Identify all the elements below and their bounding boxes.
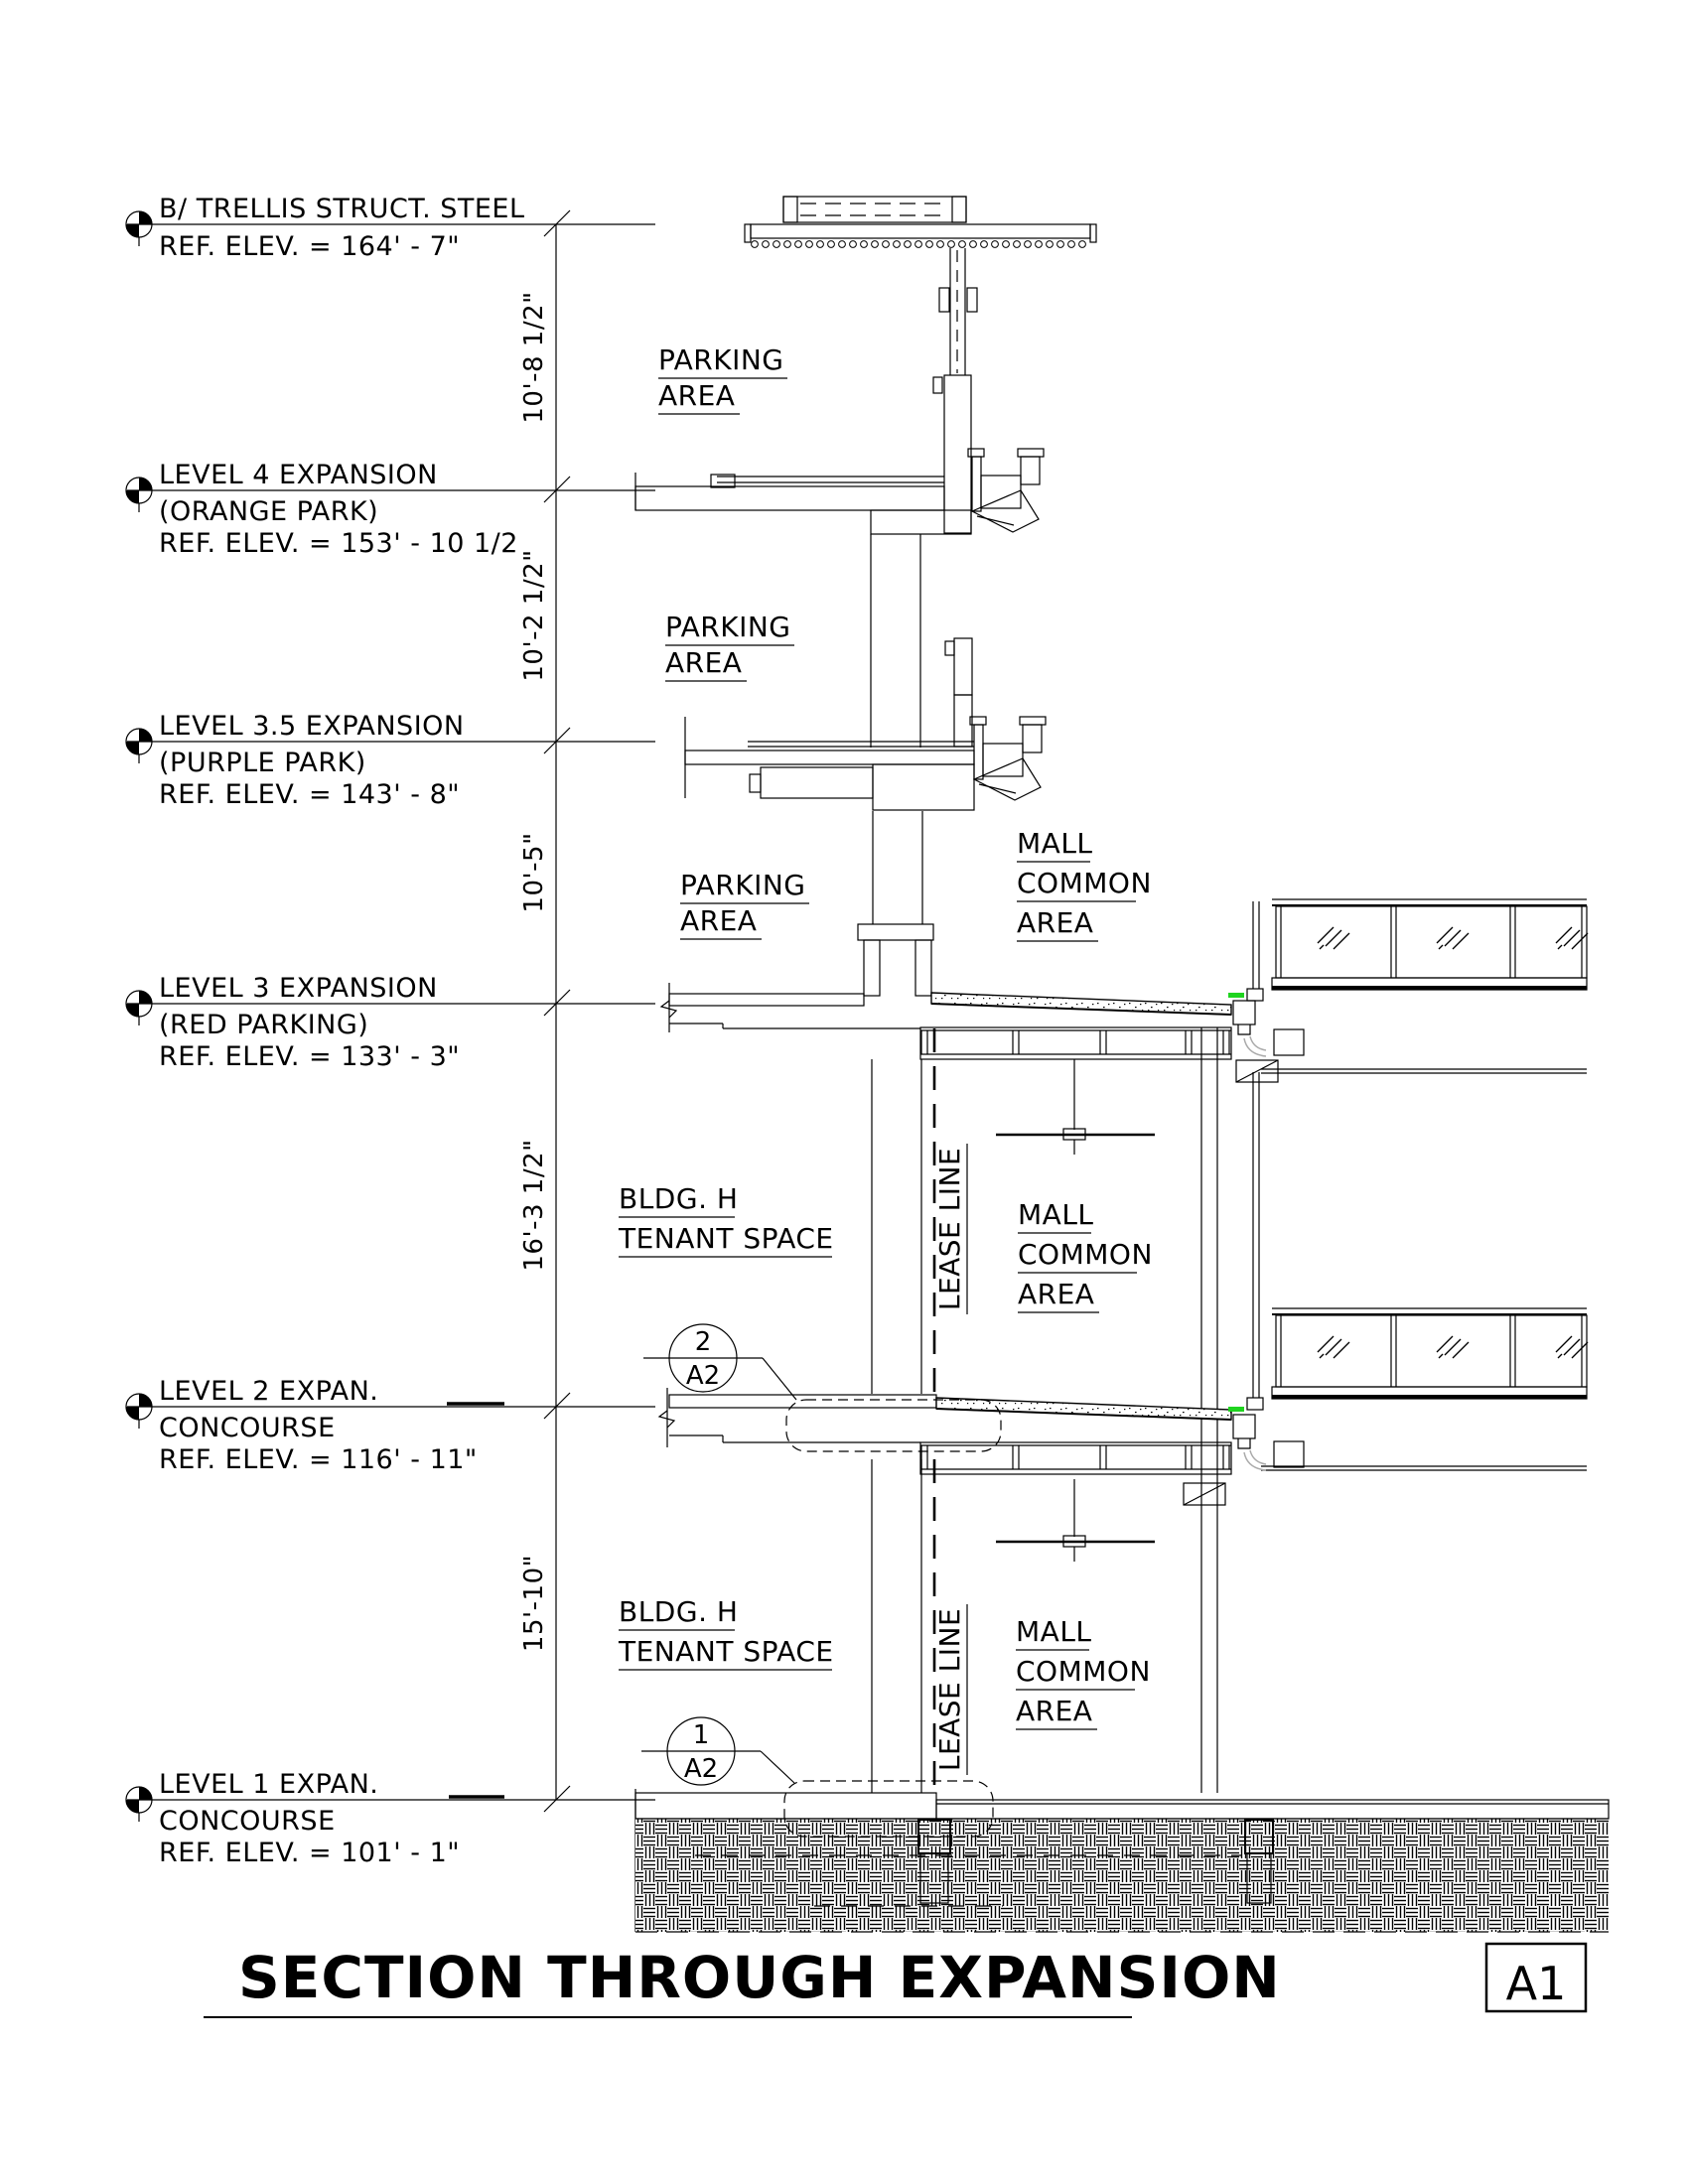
level-4-name: LEVEL 4 EXPANSION xyxy=(159,460,438,490)
tenant-1-l2: TENANT SPACE xyxy=(618,1222,834,1255)
tenant-demising-pier xyxy=(872,1059,921,1793)
sealant-highlight xyxy=(1228,1407,1244,1412)
level-4-sub: (ORANGE PARK) xyxy=(159,496,378,527)
mall-area-2-l2: COMMON xyxy=(1018,1238,1153,1271)
level-1-elev: REF. ELEV. = 101' - 1" xyxy=(159,1838,460,1868)
drawing-title: SECTION THROUGH EXPANSION xyxy=(238,1944,1281,2011)
level-4-structure xyxy=(635,375,1044,748)
detail-callout-2: 2 A2 xyxy=(643,1324,1001,1451)
tenant-1-l1: BLDG. H xyxy=(619,1182,738,1215)
mall-area-3-l1: MALL xyxy=(1016,1615,1092,1648)
mall-area-1-l3: AREA xyxy=(1017,906,1093,939)
drawing-sheet: 10'-8 1/2" 10'-2 1/2" 10'-5" 16'-3 1/2" … xyxy=(0,0,1688,2184)
parking-area-3-l1: PARKING xyxy=(680,869,805,901)
level-3-structure xyxy=(661,983,1278,1155)
parking-area-2-l1: PARKING xyxy=(665,611,790,643)
mall-area-1-l2: COMMON xyxy=(1017,867,1152,899)
mall-area-1-l1: MALL xyxy=(1017,827,1093,860)
tenant-2-l1: BLDG. H xyxy=(619,1595,738,1628)
level-1-sub: CONCOURSE xyxy=(159,1806,336,1837)
trellis-structure xyxy=(745,197,1096,393)
title-block: SECTION THROUGH EXPANSION A1 xyxy=(204,1944,1586,2017)
lease-line-label-1: LEASE LINE xyxy=(933,1148,966,1310)
callout-2-sheet: A2 xyxy=(686,1361,720,1391)
level-3-5-sub: (PURPLE PARK) xyxy=(159,748,366,778)
mall-area-2-l3: AREA xyxy=(1018,1278,1094,1310)
tenant-2-l2: TENANT SPACE xyxy=(618,1635,834,1668)
level-4-elev: REF. ELEV. = 153' - 10 1/2 xyxy=(159,528,518,559)
mall-clerestory-upper xyxy=(1247,899,1588,1073)
parking-area-2-l2: AREA xyxy=(665,646,742,679)
dim-2: 10'-2 1/2" xyxy=(519,549,549,681)
dim-4: 16'-3 1/2" xyxy=(519,1139,549,1271)
dim-1: 10'-8 1/2" xyxy=(519,291,549,423)
parking-area-1-l1: PARKING xyxy=(658,343,783,376)
level-labels: B/ TRELLIS STRUCT. STEEL REF. ELEV. = 16… xyxy=(159,194,525,1868)
callout-1-number: 1 xyxy=(693,1720,710,1750)
dim-5: 15'-10" xyxy=(519,1555,549,1652)
ground-level-1 xyxy=(635,1789,1609,1932)
level-2-name: LEVEL 2 EXPAN. xyxy=(159,1376,378,1407)
detail-ref-label: A1 xyxy=(1506,1957,1567,2010)
callout-2-number: 2 xyxy=(695,1327,712,1357)
level-trellis-elev: REF. ELEV. = 164' - 7" xyxy=(159,231,460,262)
level-1-name: LEVEL 1 EXPAN. xyxy=(159,1769,378,1800)
level-3-name: LEVEL 3 EXPANSION xyxy=(159,973,438,1004)
level-2-elev: REF. ELEV. = 116' - 11" xyxy=(159,1444,478,1475)
callout-1-sheet: A2 xyxy=(684,1754,718,1784)
mall-area-2-l1: MALL xyxy=(1018,1198,1094,1231)
dimension-string: 10'-8 1/2" 10'-2 1/2" 10'-5" 16'-3 1/2" … xyxy=(519,210,570,1812)
mall-area-3-l3: AREA xyxy=(1016,1695,1092,1727)
level-3-elev: REF. ELEV. = 133' - 3" xyxy=(159,1041,460,1072)
level-3-sub: (RED PARKING) xyxy=(159,1010,368,1040)
mall-clerestory-lower xyxy=(1247,1072,1588,1470)
level-3-5-structure xyxy=(685,638,1046,996)
level-3-5-name: LEVEL 3.5 EXPANSION xyxy=(159,711,465,742)
mall-area-3-l2: COMMON xyxy=(1016,1655,1151,1688)
sealant-highlight xyxy=(1228,993,1244,998)
level-2-sub: CONCOURSE xyxy=(159,1413,336,1443)
elevation-marker-icon xyxy=(126,211,152,1822)
level-2-structure xyxy=(659,1388,1266,1562)
section-drawing: 10'-8 1/2" 10'-2 1/2" 10'-5" 16'-3 1/2" … xyxy=(0,0,1688,2184)
level-trellis-name: B/ TRELLIS STRUCT. STEEL xyxy=(159,194,525,224)
dim-3: 10'-5" xyxy=(519,832,549,912)
lease-line-label-2: LEASE LINE xyxy=(933,1608,966,1771)
parking-area-3-l2: AREA xyxy=(680,904,757,937)
parking-area-1-l2: AREA xyxy=(658,379,735,412)
level-3-5-elev: REF. ELEV. = 143' - 8" xyxy=(159,779,460,810)
